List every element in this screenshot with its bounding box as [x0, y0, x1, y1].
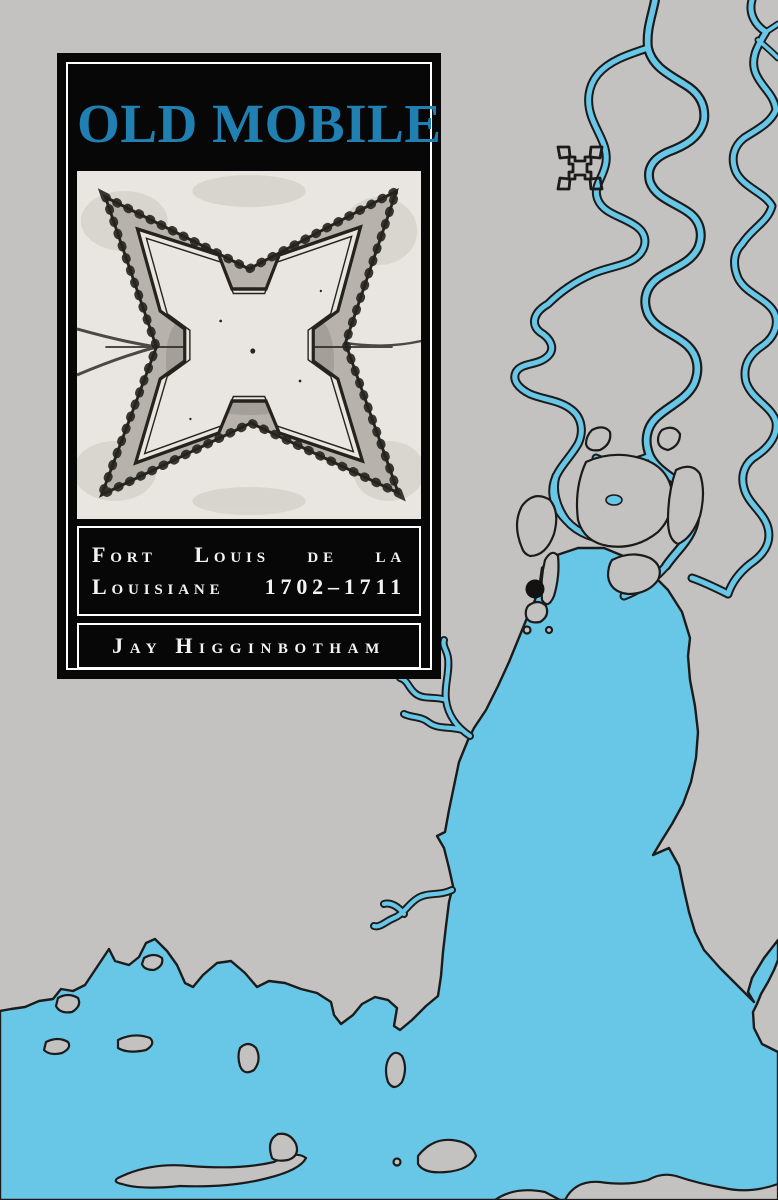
- subtitle-line-2: Louisiane 1702–1711: [92, 571, 406, 603]
- fort-plan-engraving: [77, 171, 421, 519]
- book-title: OLD MOBILE: [77, 72, 421, 171]
- delta-pond: [606, 495, 622, 505]
- settlement-dot: [526, 580, 545, 599]
- cover-panel-frame: OLD MOBILE: [66, 62, 432, 670]
- subtitle-line-1: Fort Louis de la: [92, 539, 406, 571]
- subtitle-box: Fort Louis de la Louisiane 1702–1711: [77, 526, 421, 616]
- author-box: Jay Higginbotham: [77, 623, 421, 669]
- cover-panel: OLD MOBILE: [57, 53, 441, 679]
- book-cover: OLD MOBILE: [0, 0, 778, 1200]
